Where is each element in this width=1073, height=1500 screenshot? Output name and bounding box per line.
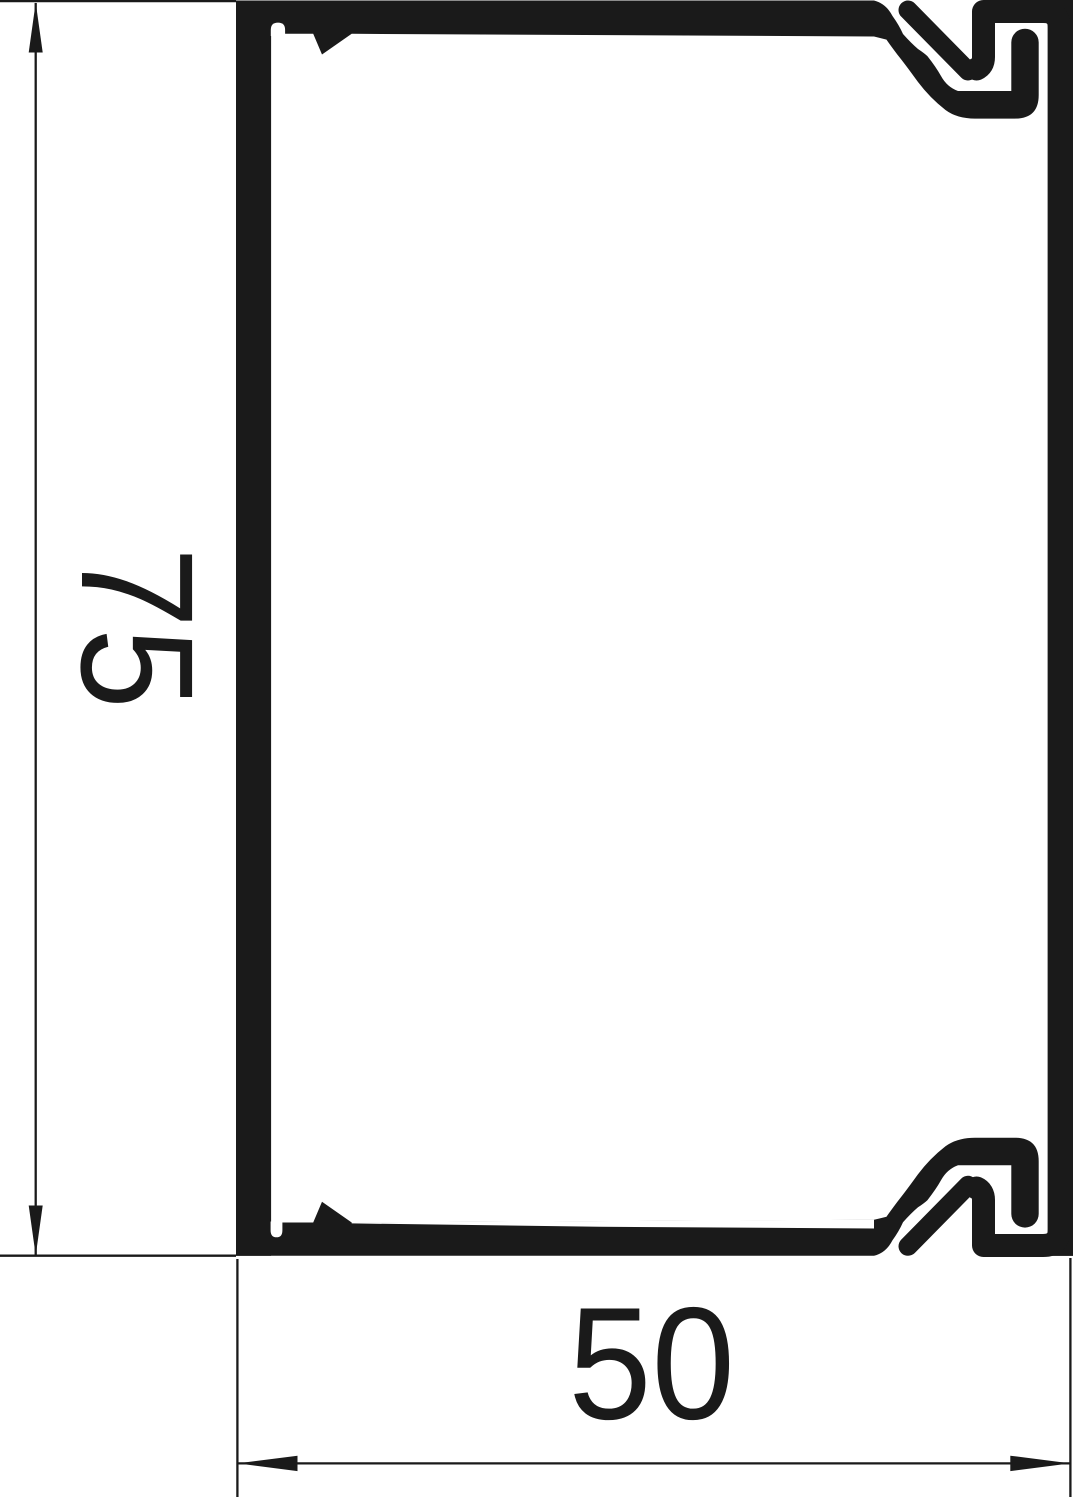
svg-text:50: 50 <box>568 1274 735 1453</box>
svg-text:75: 75 <box>47 547 225 709</box>
